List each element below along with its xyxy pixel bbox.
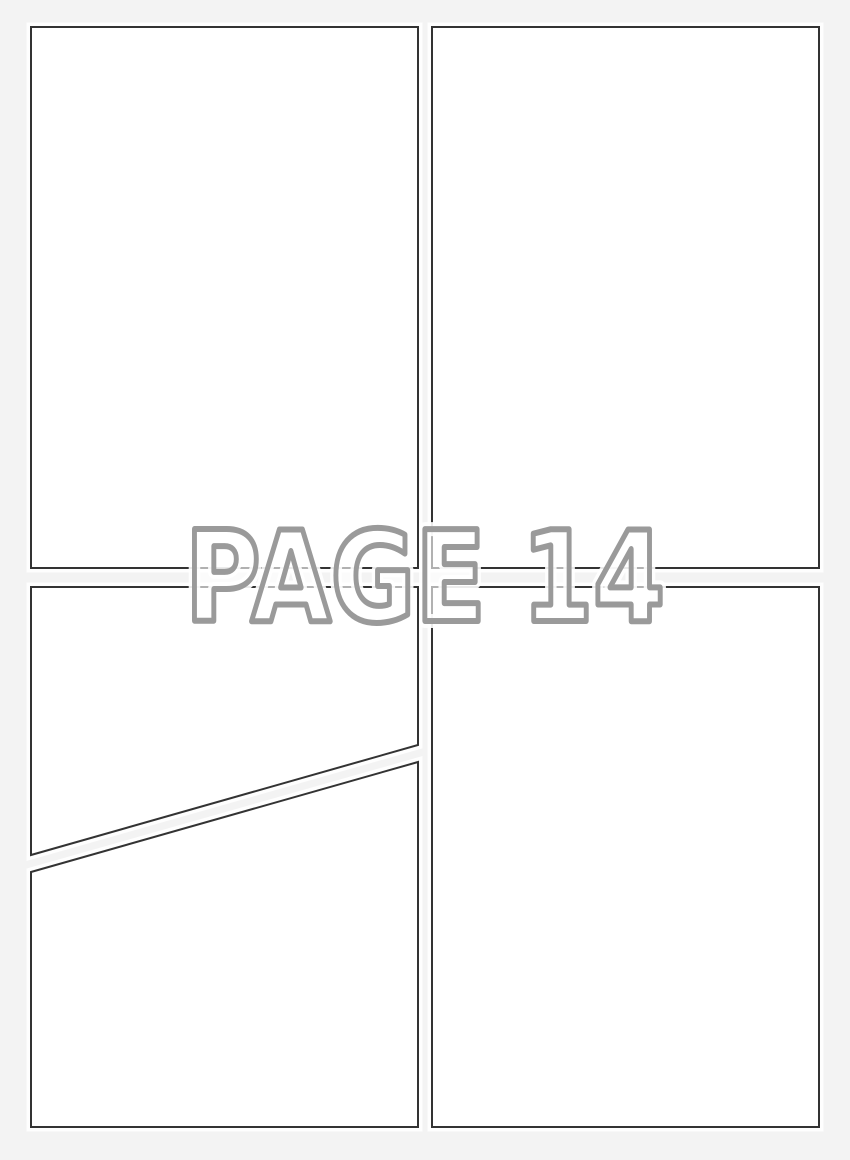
panel-bottom-right: [432, 587, 819, 1127]
panel-layout-svg: PAGE 14 PAGE 14: [0, 0, 850, 1160]
page-number-watermark: PAGE 14: [185, 504, 665, 651]
comic-page-template: PAGE 14 PAGE 14: [0, 0, 850, 1160]
panel-top-right: [432, 27, 819, 568]
panel-top-left: [31, 27, 418, 568]
